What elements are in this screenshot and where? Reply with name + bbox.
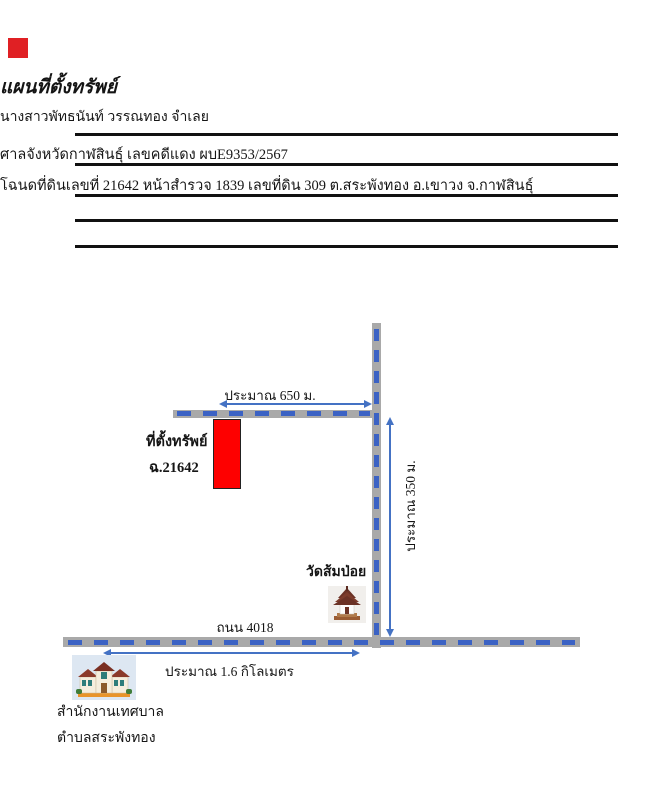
property-name-label: ที่ตั้งทรัพย์ [146, 430, 207, 453]
distance-350-arrow [389, 424, 391, 630]
arrow-down-icon [386, 629, 394, 637]
divider-rule [75, 133, 618, 136]
road-name-label: ถนน 4018 [200, 616, 290, 638]
page-title: แผนที่ตั้งทรัพย์ [0, 72, 543, 102]
defendant-line: นางสาวพัทธนันท์ วรรณทอง จำเลย [0, 106, 543, 128]
office-label-line2: ตำบลสระพังทอง [57, 727, 156, 749]
vertical-road-dashes [374, 329, 379, 639]
temple-label: วัดส้มป่อย [306, 561, 366, 583]
red-corner-marker [8, 38, 28, 58]
distance-650-label: ประมาณ 650 ม. [210, 384, 330, 406]
divider-rule [75, 194, 618, 197]
access-road-dashes [177, 411, 370, 416]
distance-16km-arrow [110, 652, 354, 654]
arrow-up-icon [386, 417, 394, 425]
arrow-right-icon [364, 400, 372, 408]
distance-350-label: ประมาณ 350 ม. [399, 426, 421, 586]
divider-rule [75, 163, 618, 166]
document-page: แผนที่ตั้งทรัพย์ นางสาวพัทธนันท์ วรรณทอง… [0, 0, 650, 800]
property-marker [213, 419, 241, 489]
arrow-right-icon [352, 649, 360, 657]
office-label-line1: สำนักงานเทศบาล [57, 701, 164, 723]
property-deed-label: ฉ.21642 [149, 456, 199, 479]
divider-rule [75, 245, 618, 248]
municipal-office-icon [72, 655, 136, 700]
temple-icon [328, 586, 366, 623]
divider-rule [75, 219, 618, 222]
main-road-dashes [68, 640, 575, 645]
distance-16km-label: ประมาณ 1.6 กิโลเมตร [165, 660, 294, 682]
